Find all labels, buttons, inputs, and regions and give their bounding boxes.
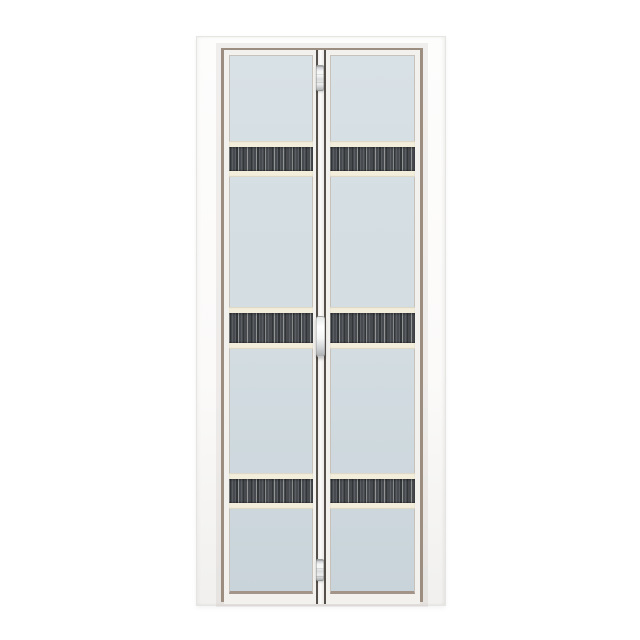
decorative-band: [330, 141, 415, 177]
product-photo: [0, 0, 640, 640]
door-leaf-left: [224, 50, 318, 604]
door-leaf-right: [324, 50, 420, 604]
glass-pane-left: [229, 55, 313, 594]
band-dark-strip: [229, 147, 313, 171]
bifold-door: [196, 36, 446, 606]
band-dark-strip: [229, 479, 313, 503]
door-leaves: [224, 50, 420, 604]
hinge-top: [316, 65, 324, 91]
hinge-bottom: [316, 559, 324, 581]
center-fold-joint: [318, 50, 324, 604]
band-dark-strip: [330, 313, 415, 343]
decorative-band: [229, 141, 313, 177]
band-dark-strip: [330, 147, 415, 171]
band-dark-strip: [229, 313, 313, 343]
decorative-band: [229, 307, 313, 349]
decorative-band: [229, 473, 313, 509]
decorative-band: [330, 473, 415, 509]
glass-pane-right: [330, 55, 415, 594]
band-dark-strip: [330, 479, 415, 503]
decorative-band: [330, 307, 415, 349]
door-handle: [316, 316, 325, 357]
